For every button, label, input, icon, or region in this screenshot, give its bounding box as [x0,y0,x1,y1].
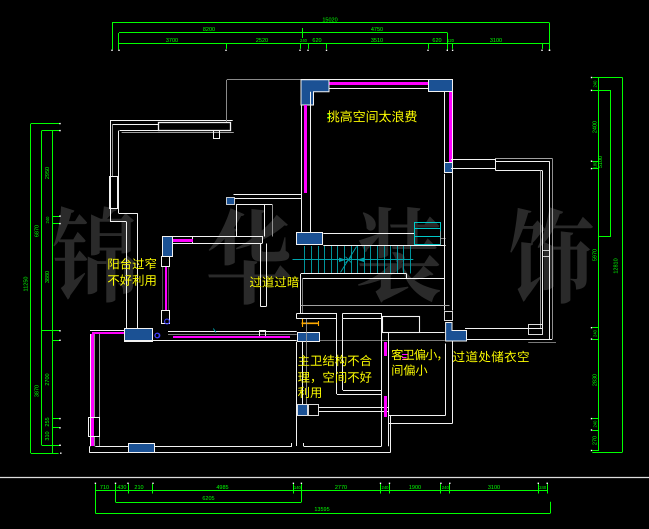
svg-text:2830: 2830 [592,374,598,386]
svg-text:2400: 2400 [592,121,598,133]
svg-text:240: 240 [539,485,547,490]
svg-text:180: 180 [592,161,597,169]
svg-text:620: 620 [312,38,321,44]
svg-text:3100: 3100 [490,38,502,44]
svg-text:240: 240 [592,80,597,88]
svg-text:310: 310 [45,431,51,440]
svg-text:2700: 2700 [45,373,51,385]
svg-text:3700: 3700 [166,38,178,44]
svg-text:270: 270 [592,436,598,445]
svg-text:255: 255 [45,417,51,426]
svg-text:4985: 4985 [216,485,228,491]
svg-text:5970: 5970 [592,249,598,261]
svg-text:15020: 15020 [322,18,337,24]
svg-text:3880: 3880 [45,271,51,283]
svg-text:4750: 4750 [371,27,383,33]
svg-text:2520: 2520 [256,38,268,44]
svg-text:8200: 8200 [203,27,215,33]
svg-text:240: 240 [442,485,450,490]
svg-text:140: 140 [294,485,302,490]
svg-text:240: 240 [592,420,597,428]
svg-text:5100: 5100 [598,156,604,168]
svg-text:3100: 3100 [488,485,500,491]
svg-text:240: 240 [300,38,308,43]
svg-text:3870: 3870 [34,385,40,397]
svg-text:1900: 1900 [409,485,421,491]
svg-text:240: 240 [382,485,390,490]
svg-text:6870: 6870 [34,225,40,237]
svg-text:11250: 11250 [24,277,30,292]
svg-text:2770: 2770 [335,485,347,491]
svg-text:120: 120 [447,38,455,43]
svg-text:2950: 2950 [45,167,51,179]
svg-text:240: 240 [592,329,597,337]
svg-text:620: 620 [432,38,441,44]
svg-text:13595: 13595 [314,507,329,513]
svg-text:6205: 6205 [202,496,214,502]
svg-text:240: 240 [45,216,50,224]
svg-text:430: 430 [117,485,126,491]
svg-text:710: 710 [100,485,109,491]
svg-text:12810: 12810 [614,258,620,273]
svg-text:210: 210 [134,485,143,491]
svg-text:3510: 3510 [371,38,383,44]
